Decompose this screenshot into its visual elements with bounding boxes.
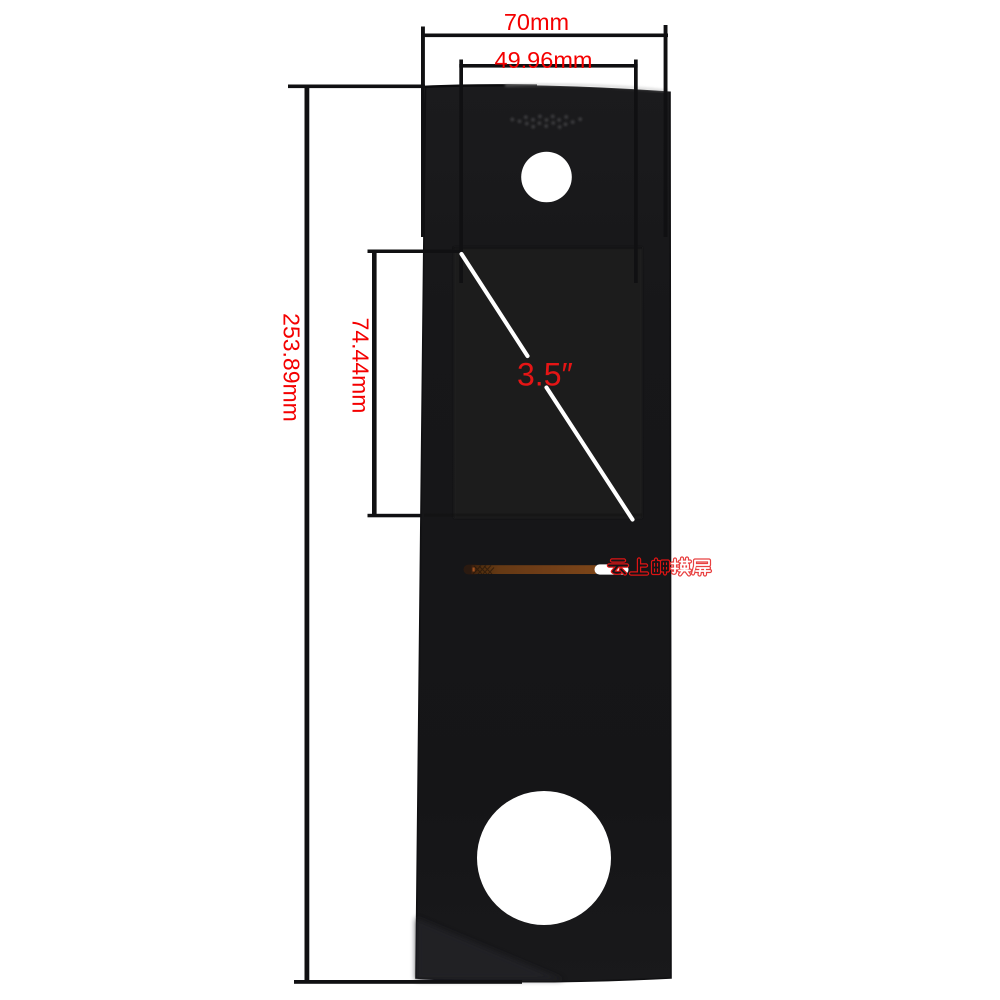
- svg-text:49.96mm: 49.96mm: [495, 47, 593, 73]
- svg-text:74.44mm: 74.44mm: [348, 318, 374, 414]
- svg-text:253.89mm: 253.89mm: [279, 313, 305, 422]
- svg-text:70mm: 70mm: [504, 9, 569, 35]
- svg-text:3.5″: 3.5″: [517, 357, 573, 393]
